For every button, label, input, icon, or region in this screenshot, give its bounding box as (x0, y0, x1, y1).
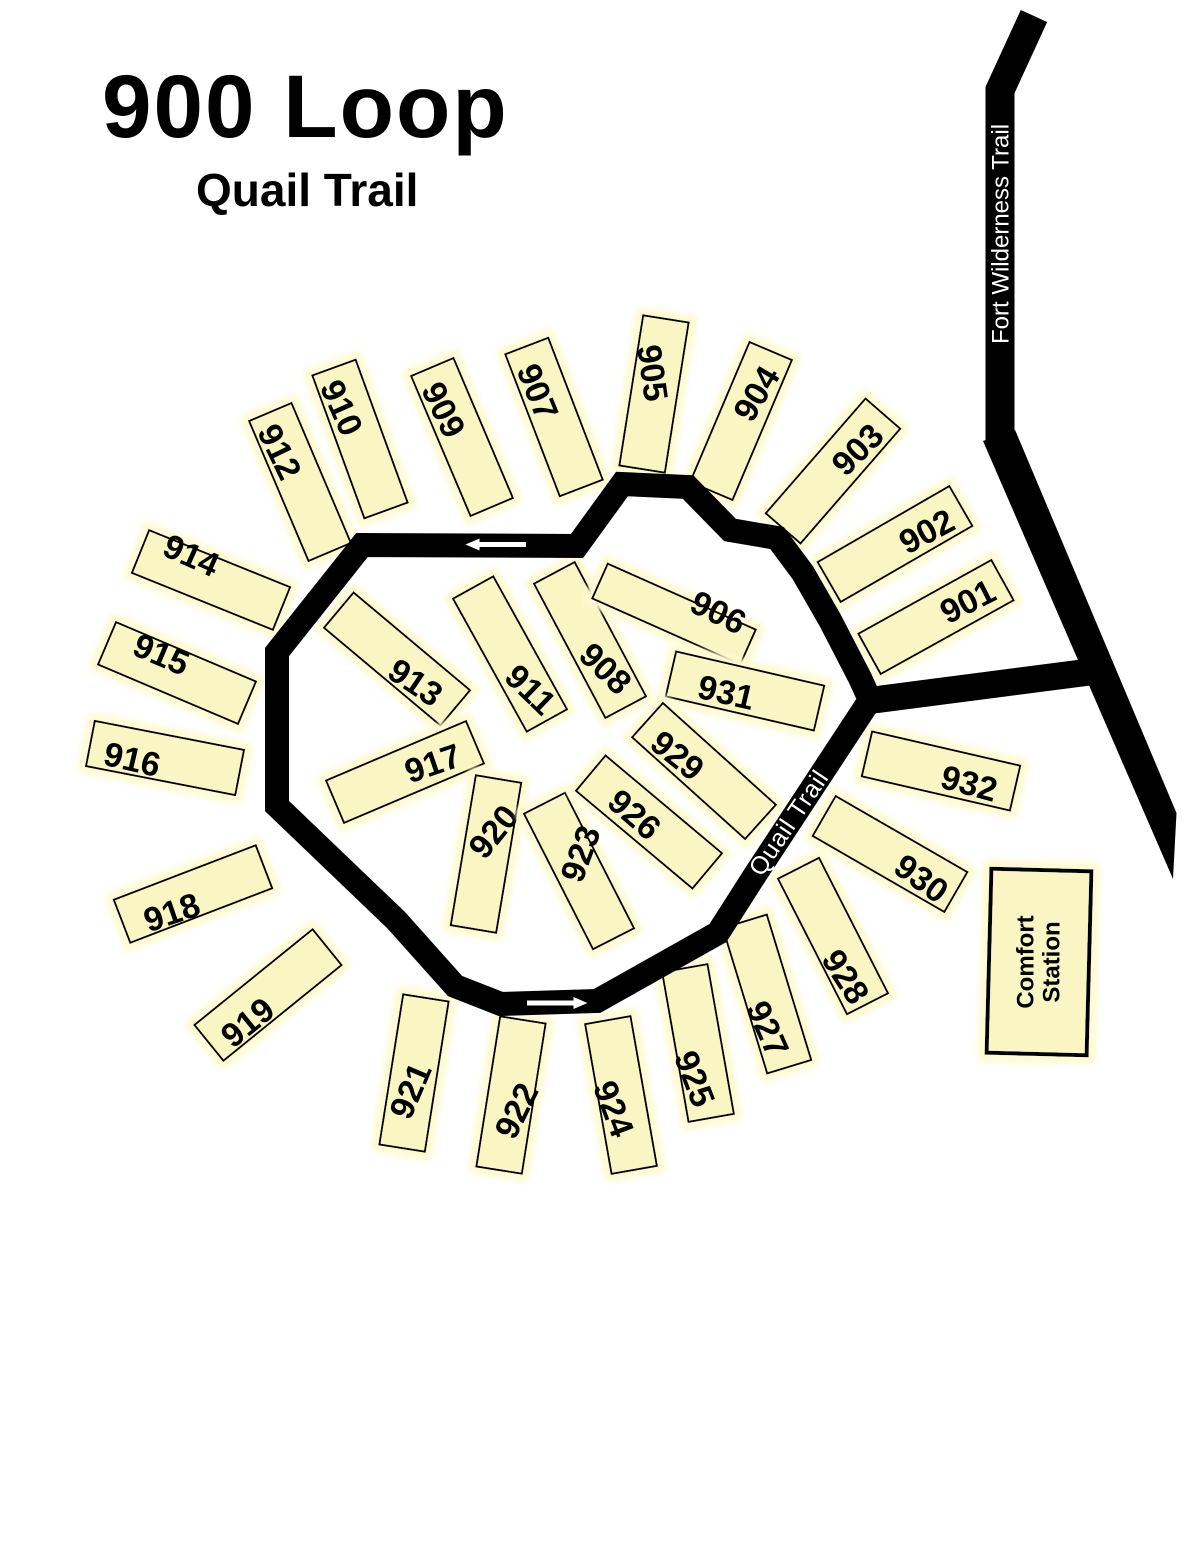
svg-text:Station: Station (1039, 921, 1066, 1002)
svg-text:Fort Wilderness Trail: Fort Wilderness Trail (988, 124, 1015, 344)
svg-text:900 Loop: 900 Loop (102, 56, 509, 156)
svg-text:Comfort: Comfort (1013, 915, 1040, 1008)
svg-text:905: 905 (629, 342, 675, 403)
svg-text:Quail Trail: Quail Trail (196, 164, 418, 216)
